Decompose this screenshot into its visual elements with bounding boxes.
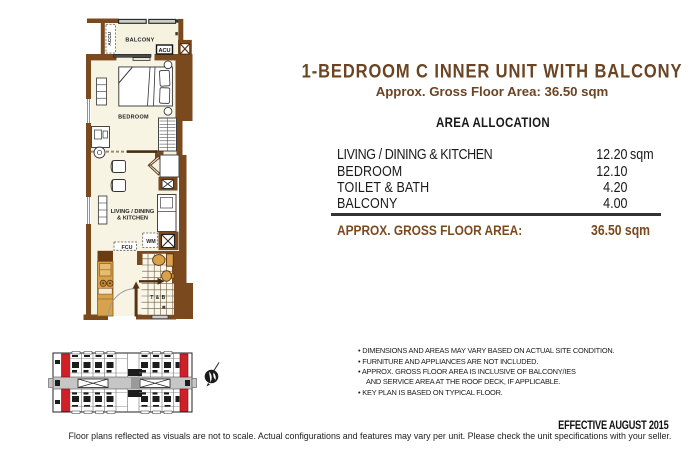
svg-text:ACCU: ACCU xyxy=(107,31,113,45)
svg-text:BEDROOM: BEDROOM xyxy=(118,114,149,120)
svg-text:WM: WM xyxy=(146,239,156,245)
svg-text:& KITCHEN: & KITCHEN xyxy=(117,215,148,221)
svg-text:FCU: FCU xyxy=(122,245,133,251)
svg-text:LIVING / DINING: LIVING / DINING xyxy=(111,209,155,215)
svg-text:T & B: T & B xyxy=(150,295,166,301)
svg-text:BALCONY: BALCONY xyxy=(125,37,154,43)
svg-text:ACU: ACU xyxy=(158,48,170,54)
